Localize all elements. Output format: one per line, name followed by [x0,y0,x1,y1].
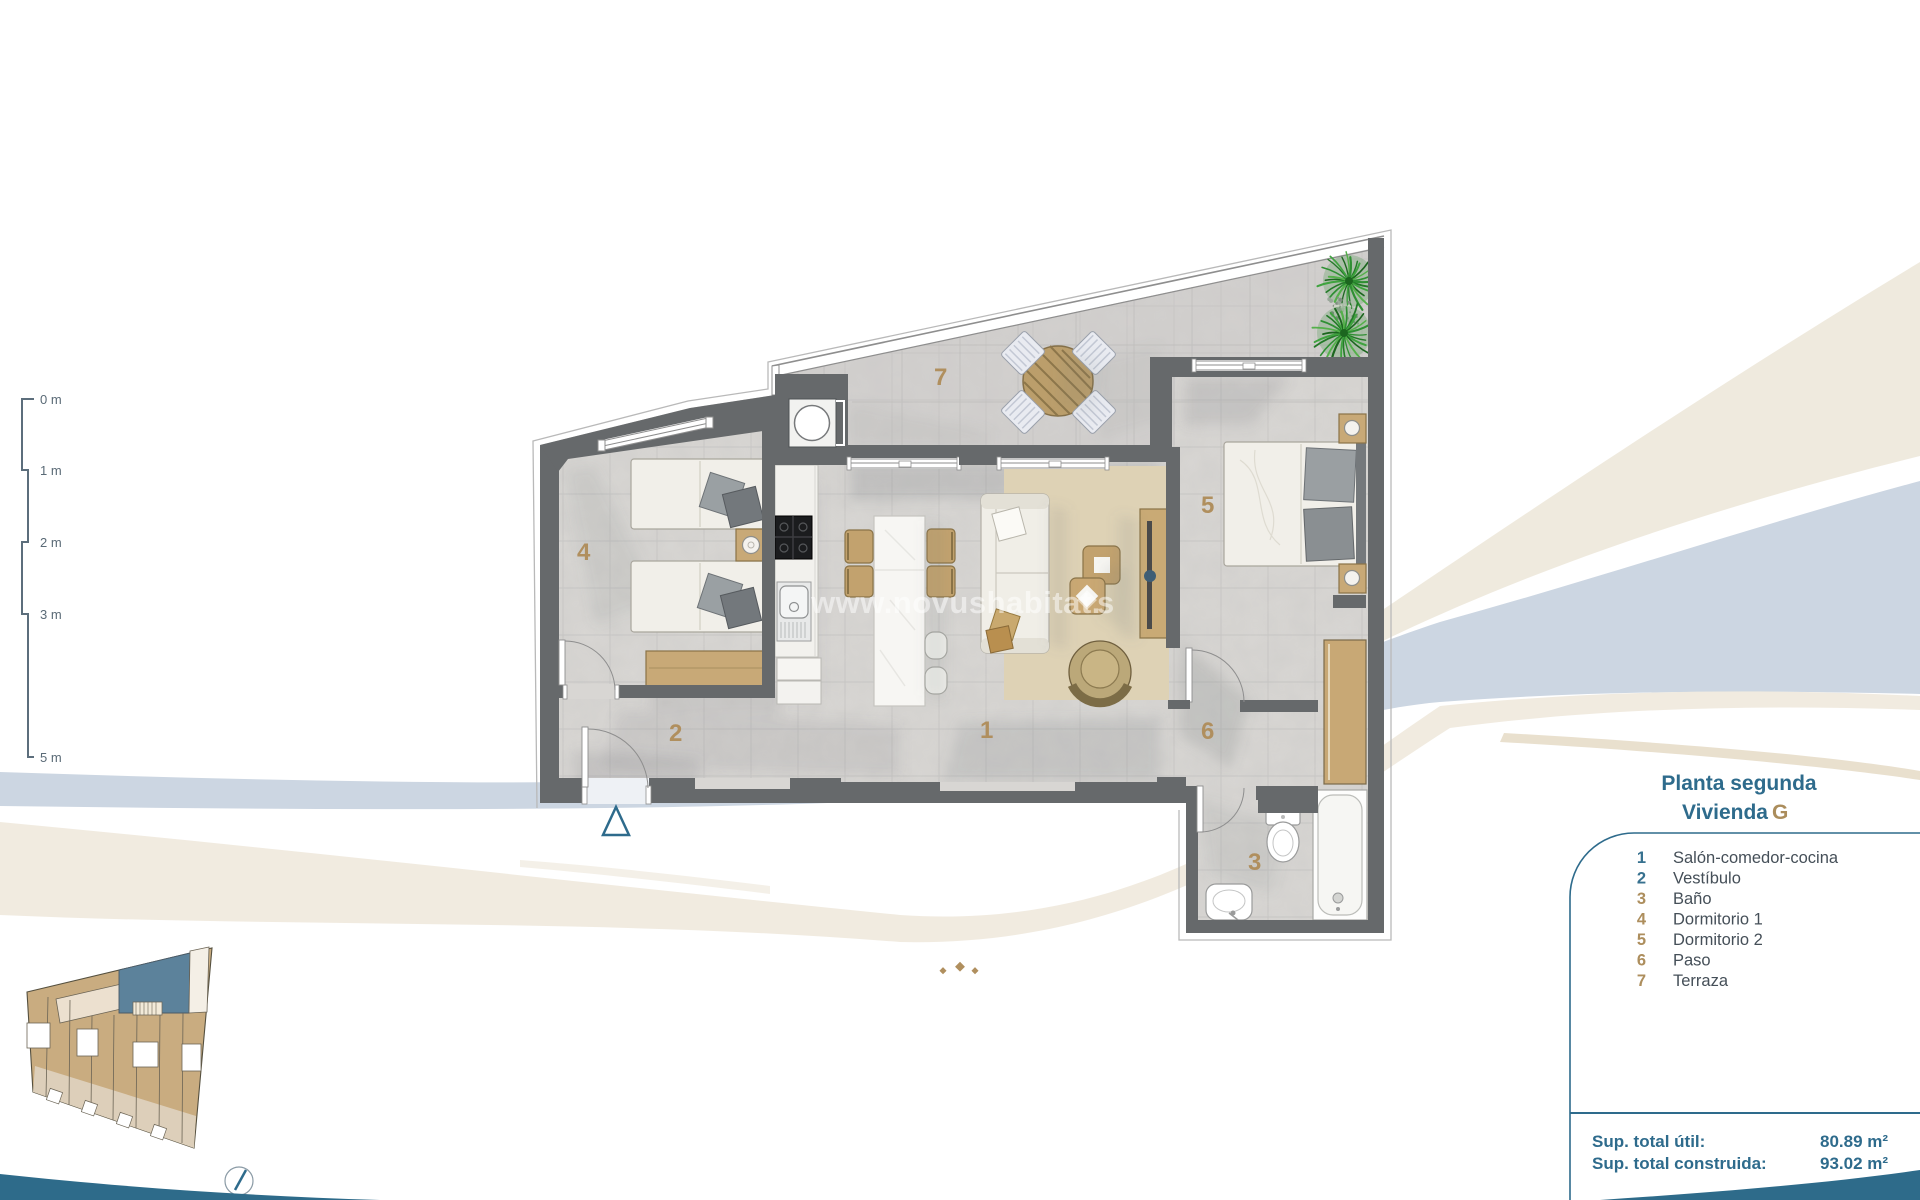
svg-text:2: 2 [669,720,682,747]
svg-text:5: 5 [1637,931,1646,949]
svg-text:Dormitorio 2: Dormitorio 2 [1673,931,1763,949]
svg-text:Terraza: Terraza [1673,972,1729,990]
svg-text:Vestíbulo: Vestíbulo [1673,870,1741,888]
svg-text:Paso: Paso [1673,952,1711,970]
svg-text:Dormitorio 1: Dormitorio 1 [1673,911,1763,929]
svg-text:Baño: Baño [1673,890,1712,908]
svg-text:1: 1 [980,717,993,744]
svg-text:1: 1 [1637,849,1646,867]
svg-text:6: 6 [1201,718,1214,745]
svg-text:www.novushabitat.: www.novushabitat. [810,585,1101,620]
svg-text:Sup. total útil:: Sup. total útil: [1592,1132,1705,1151]
svg-text:4: 4 [1637,911,1647,929]
svg-text:s: s [1097,585,1114,620]
svg-text:G: G [1772,801,1788,824]
svg-text:5: 5 [1201,492,1214,519]
svg-text:1 m: 1 m [40,463,62,478]
svg-text:4: 4 [577,539,591,566]
svg-text:Sup. total construida:: Sup. total construida: [1592,1154,1767,1173]
svg-text:2 m: 2 m [40,535,62,550]
svg-text:Planta segunda: Planta segunda [1661,772,1817,795]
svg-text:3 m: 3 m [40,607,62,622]
svg-text:6: 6 [1637,952,1646,970]
svg-text:3: 3 [1637,890,1646,908]
svg-text:Salón-comedor-cocina: Salón-comedor-cocina [1673,849,1839,867]
svg-text:5 m: 5 m [40,750,62,765]
svg-text:Vivienda: Vivienda [1682,801,1768,824]
svg-text:7: 7 [1637,972,1646,990]
svg-text:2: 2 [1637,870,1646,888]
svg-text:3: 3 [1248,849,1261,876]
svg-text:7: 7 [934,364,947,391]
svg-text:0 m: 0 m [40,392,62,407]
svg-text:93.02 m²: 93.02 m² [1820,1154,1888,1173]
svg-text:80.89 m²: 80.89 m² [1820,1132,1888,1151]
